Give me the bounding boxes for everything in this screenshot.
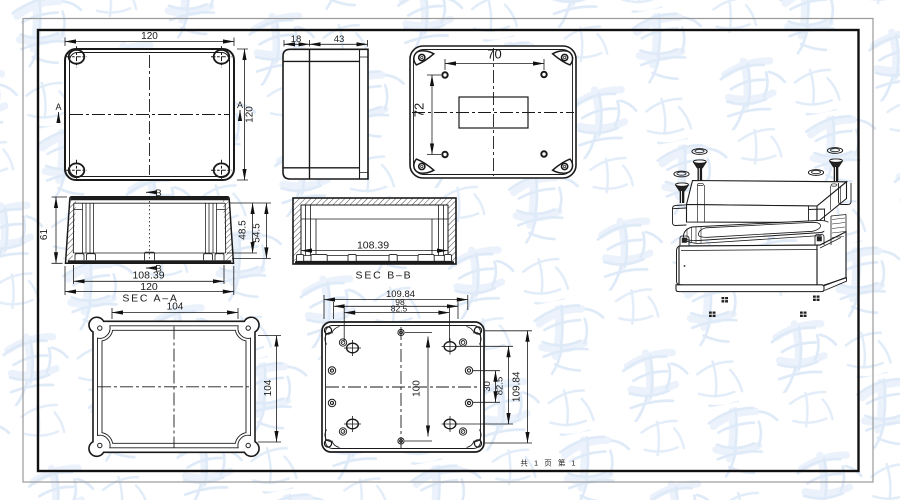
svg-text:共 1 页 第 1: 共 1 页 第 1 (520, 458, 577, 468)
svg-text:120: 120 (141, 31, 158, 42)
svg-text:108.39: 108.39 (132, 270, 164, 282)
svg-text:100: 100 (412, 380, 423, 397)
svg-text:SEC B–B: SEC B–B (356, 269, 413, 281)
svg-text:120: 120 (245, 106, 256, 123)
svg-text:A: A (55, 102, 61, 112)
svg-text:18: 18 (291, 34, 302, 45)
svg-text:104: 104 (167, 302, 184, 313)
svg-text:30: 30 (482, 381, 493, 392)
svg-text:108.39: 108.39 (357, 240, 389, 252)
svg-text:72: 72 (412, 103, 427, 117)
svg-text:54.5: 54.5 (252, 223, 263, 243)
svg-text:104: 104 (263, 379, 274, 396)
svg-text:109.84: 109.84 (512, 371, 523, 402)
svg-text:70: 70 (487, 47, 501, 62)
svg-text:B: B (155, 188, 161, 199)
svg-text:48.5: 48.5 (238, 220, 249, 240)
svg-text:43: 43 (334, 34, 345, 45)
svg-text:A: A (237, 100, 243, 110)
svg-text:82.5: 82.5 (391, 303, 408, 313)
svg-text:120: 120 (140, 281, 158, 293)
svg-text:61: 61 (39, 229, 50, 241)
svg-text:82.5: 82.5 (495, 377, 506, 396)
